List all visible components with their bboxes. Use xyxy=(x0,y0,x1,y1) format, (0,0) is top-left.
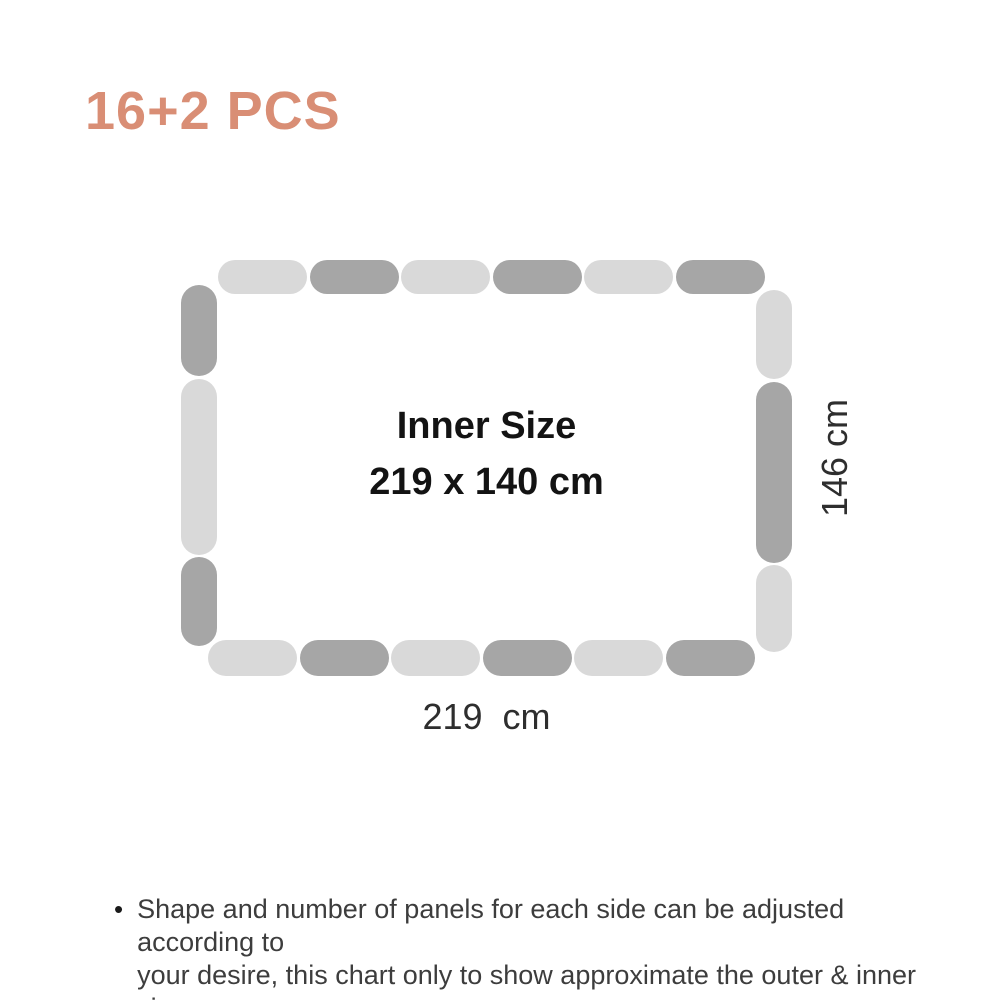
panel-dark xyxy=(493,260,582,294)
panel-dark xyxy=(181,557,217,646)
inner-size-value: 219 x 140 cm xyxy=(181,454,792,510)
panel-light xyxy=(391,640,480,676)
panel-light xyxy=(208,640,297,676)
panel-dark xyxy=(666,640,755,676)
panel-light xyxy=(574,640,663,676)
footnote-text: Shape and number of panels for each side… xyxy=(137,893,944,1000)
footnote: • Shape and number of panels for each si… xyxy=(114,893,944,1000)
panel-dark xyxy=(300,640,389,676)
inner-size-label: Inner Size 219 x 140 cm xyxy=(181,398,792,510)
outer-width-label: 219 cm xyxy=(181,696,792,738)
panel-light xyxy=(584,260,673,294)
footnote-line-1: Shape and number of panels for each side… xyxy=(137,894,844,957)
panel-row-bottom xyxy=(208,640,755,676)
panel-dark xyxy=(676,260,765,294)
panel-light xyxy=(756,290,792,379)
playpen-panel-diagram: Inner Size 219 x 140 cm xyxy=(181,260,792,676)
infographic-canvas: 16+2 PCS Inner Size 219 x 140 cm 219 cm … xyxy=(0,0,1000,1000)
panel-light xyxy=(756,565,792,652)
panel-row-top xyxy=(218,260,765,294)
bullet-icon: • xyxy=(114,893,123,1000)
outer-height-label: 146 cm xyxy=(814,399,856,517)
panel-dark xyxy=(483,640,572,676)
panel-dark xyxy=(310,260,399,294)
inner-size-title: Inner Size xyxy=(181,398,792,454)
panel-light xyxy=(401,260,490,294)
panel-light xyxy=(218,260,307,294)
panel-dark xyxy=(181,285,217,376)
page-title: 16+2 PCS xyxy=(85,84,341,138)
footnote-line-2: your desire, this chart only to show app… xyxy=(137,960,916,1000)
